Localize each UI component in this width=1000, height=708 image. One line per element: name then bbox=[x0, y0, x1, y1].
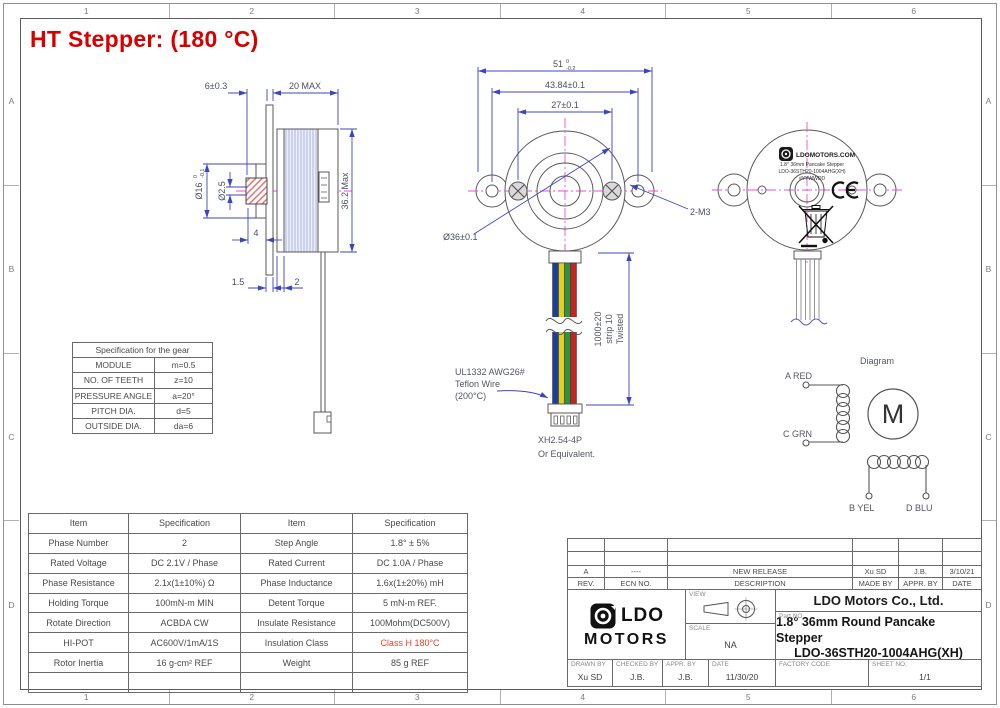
wire-connector bbox=[314, 412, 331, 433]
spec-cell: 1.8° ± 5% bbox=[353, 533, 468, 553]
part-cell: Part NO. 1.8° 36mm Round Pancake Stepper… bbox=[775, 611, 982, 660]
spec-cell: 85 g REF bbox=[353, 653, 468, 673]
connector-latch bbox=[327, 416, 331, 422]
checked-by-cell: CHECKED BY J.B. bbox=[612, 659, 663, 687]
sheet-no-value: 1/1 bbox=[919, 665, 931, 682]
label-line2: LDO-36STH20-1004AHG(XH) bbox=[779, 169, 846, 175]
spec-cell: 1.6x(1±20%) mH bbox=[353, 573, 468, 593]
spec-cell: Phase Inductance bbox=[241, 573, 353, 593]
empty-cell bbox=[567, 538, 605, 552]
date-label: DATE bbox=[712, 661, 729, 668]
svg-text:0: 0 bbox=[193, 175, 199, 178]
spec-cell: Rated Current bbox=[241, 553, 353, 573]
front-view: 51 0 -0.2 43.84±0.1 27±0.1 Ø36±0.1 2-M3 bbox=[443, 59, 711, 459]
scale-cell: SCALE NA bbox=[685, 623, 776, 660]
date-cell: DATE 11/30/20 bbox=[708, 659, 776, 687]
wire-bundle bbox=[546, 251, 582, 426]
company-name-cell: LDO Motors Co., Ltd. bbox=[775, 589, 982, 612]
part-number: LDO-36STH20-1004AHG(XH) bbox=[794, 646, 963, 660]
gear-value: d=5 bbox=[155, 403, 213, 418]
terminal-c bbox=[803, 440, 809, 446]
terminal-a-label: A RED bbox=[785, 371, 813, 381]
spec-cell: 100mN-m MIN bbox=[129, 593, 241, 613]
spec-cell: Insulation Class bbox=[241, 633, 353, 653]
spec-cell: Insulate Resistance bbox=[241, 613, 353, 633]
length-note-strip: strip 10 bbox=[604, 314, 614, 344]
label-mounting-holes: 2-M3 bbox=[690, 207, 711, 217]
dim-plate-thk: 2 bbox=[294, 277, 299, 287]
drawn-by-cell: DRAWN BY Xu SD bbox=[567, 659, 613, 687]
gear-table-title: Specification for the gear bbox=[73, 343, 213, 358]
motor-spec-table: Item Specification Item Specification Ph… bbox=[28, 513, 468, 693]
spec-cell: 5 mN-m REF. bbox=[353, 593, 468, 613]
mounting-hole-left bbox=[486, 185, 498, 197]
rear-wires bbox=[791, 251, 827, 325]
phase-coil-ac bbox=[837, 385, 850, 443]
dim-body-od: 36.2 Max bbox=[340, 172, 350, 210]
screw-right bbox=[603, 182, 621, 200]
dim-bore: Ø2.5 bbox=[217, 181, 227, 201]
wire-note-leader bbox=[497, 391, 548, 398]
spec-cell: 2.1x(1±10%) Ω bbox=[129, 573, 241, 593]
empty-cell bbox=[567, 551, 605, 566]
spec-cell: Step Angle bbox=[241, 533, 353, 553]
empty-cell bbox=[852, 538, 899, 552]
part-title: 1.8° 36mm Round Pancake Stepper bbox=[776, 615, 981, 646]
wire-note-2: Teflon Wire bbox=[455, 379, 500, 389]
length-note-twisted: Twisted bbox=[615, 314, 625, 345]
empty-cell bbox=[241, 673, 353, 693]
empty-cell bbox=[898, 551, 943, 566]
empty-cell bbox=[942, 551, 982, 566]
gear-item: NO. OF TEETH bbox=[73, 373, 155, 388]
mounting-hole-left bbox=[728, 184, 740, 196]
dim-tab-width: 51 bbox=[553, 59, 563, 69]
spec-header: Item bbox=[241, 514, 353, 534]
connector-note-2: Or Equivalent. bbox=[538, 449, 595, 459]
empty-cell bbox=[129, 673, 241, 693]
gear-item: PITCH DIA. bbox=[73, 403, 155, 418]
terminal-d-label: D BLU bbox=[906, 503, 933, 513]
rear-view: LDOMOTORS.COM 1.8° 36mm Pancake Stepper … bbox=[712, 122, 902, 325]
checked-by-label: CHECKED BY bbox=[616, 661, 658, 668]
dim-flange-thk: 1.5 bbox=[232, 277, 245, 287]
rear-connector-block bbox=[319, 172, 329, 202]
spec-cell: Detent Torque bbox=[241, 593, 353, 613]
wire-note-3: (200°C) bbox=[455, 391, 486, 401]
spec-cell: Weight bbox=[241, 653, 353, 673]
company-logo: LDO MOTORS bbox=[567, 589, 686, 660]
drawn-by-label: DRAWN BY bbox=[571, 661, 606, 668]
phase-coil-bd bbox=[868, 456, 929, 469]
empty-cell bbox=[942, 538, 982, 552]
third-angle-projection-icon bbox=[696, 597, 766, 621]
empty-cell bbox=[604, 551, 668, 566]
empty-cell bbox=[898, 538, 943, 552]
label-line3: #YYWWDD bbox=[799, 176, 826, 182]
side-view: 6±0.3 20 MAX Ø16 0 -0.1 Ø2.5 36.2 Max 4 … bbox=[193, 81, 357, 433]
sheet-no-label: SHEET NO. bbox=[872, 661, 907, 668]
spec-cell: 2 bbox=[129, 533, 241, 553]
sheet-no-cell: SHEET NO. 1/1 bbox=[868, 659, 982, 687]
logo-text-ldo: LDO bbox=[621, 606, 664, 625]
front-plate bbox=[277, 129, 284, 252]
factory-code-label: FACTORY CODE bbox=[779, 661, 830, 668]
terminal-a bbox=[803, 382, 809, 388]
empty-cell bbox=[667, 538, 853, 552]
wire-green bbox=[565, 263, 571, 405]
appr-by-label: APPR. BY bbox=[666, 661, 696, 668]
lead-wire bbox=[321, 252, 325, 412]
label-brand: LDOMOTORS.COM bbox=[796, 152, 855, 159]
dim-tab-width-tol-lower: -0.2 bbox=[566, 66, 575, 72]
connector-note-1: XH2.54-4P bbox=[538, 435, 582, 445]
spec-cell: ACBDA CW bbox=[129, 613, 241, 633]
connector-housing bbox=[548, 404, 582, 413]
empty-cell bbox=[667, 551, 853, 566]
gear-value: a=20° bbox=[155, 388, 213, 403]
dim-body-dia: Ø36±0.1 bbox=[443, 232, 477, 242]
scale-value: NA bbox=[724, 634, 737, 650]
spec-header: Specification bbox=[129, 514, 241, 534]
title-block: A ---- NEW RELEASE Xu SD J.B. 3/10/21 RE… bbox=[567, 538, 982, 687]
date-value: 11/30/20 bbox=[726, 665, 758, 682]
gear-item: MODULE bbox=[73, 358, 155, 373]
spec-cell: Phase Number bbox=[29, 533, 129, 553]
dim-tab-width-tol-upper: 0 bbox=[566, 59, 569, 65]
spec-cell: AC600V/1mA/1S bbox=[129, 633, 241, 653]
gear-section bbox=[246, 178, 267, 204]
dim-screw-span: 27±0.1 bbox=[551, 100, 578, 110]
dim-gear-length: 6±0.3 bbox=[205, 81, 227, 91]
drawing-sheet: 1 2 3 4 5 6 1 2 3 4 5 6 A B C D A B C D … bbox=[0, 0, 1000, 708]
factory-code-cell: FACTORY CODE bbox=[775, 659, 869, 687]
empty-cell bbox=[353, 673, 468, 693]
svg-text:-0.1: -0.1 bbox=[200, 169, 206, 178]
gear-value: m=0.5 bbox=[155, 358, 213, 373]
terminal-c-label: C GRN bbox=[783, 429, 812, 439]
wiring-diagram: Diagram A RED C GRN M B YEL D BLU bbox=[783, 356, 933, 513]
part-no-label: Part NO. bbox=[779, 613, 804, 620]
label-line1: 1.8° 36mm Pancake Stepper bbox=[780, 162, 844, 168]
scale-label: SCALE bbox=[689, 625, 710, 632]
spec-cell: 16 g-cm² REF bbox=[129, 653, 241, 673]
spec-cell-insulation-class: Class H 180°C bbox=[353, 633, 468, 653]
logo-text-motors: MOTORS bbox=[584, 632, 669, 648]
mounting-hole-right bbox=[874, 184, 886, 196]
wire-note-1: UL1332 AWG26# bbox=[455, 367, 525, 377]
gear-item: OUTSIDE DIA. bbox=[73, 418, 155, 433]
empty-cell bbox=[604, 538, 668, 552]
motor-symbol: M bbox=[882, 399, 905, 429]
spec-header: Item bbox=[29, 514, 129, 534]
spec-cell: 100Mohm(DC500V) bbox=[353, 613, 468, 633]
appr-by-cell: APPR. BY J.B. bbox=[662, 659, 709, 687]
dim-body-length: 20 MAX bbox=[289, 81, 321, 91]
spec-header: Specification bbox=[353, 514, 468, 534]
dim-gear-od: Ø16 0 -0.1 bbox=[193, 169, 206, 200]
company-name: LDO Motors Co., Ltd. bbox=[814, 593, 944, 608]
spec-cell: Rated Voltage bbox=[29, 553, 129, 573]
view-label: VIEW bbox=[689, 591, 706, 598]
dim-hole-span: 43.84±0.1 bbox=[545, 80, 585, 90]
spec-cell: Rotate Direction bbox=[29, 613, 129, 633]
empty-cell bbox=[29, 673, 129, 693]
spec-cell: DC 2.1V / Phase bbox=[129, 553, 241, 573]
spec-cell: DC 1.0A / Phase bbox=[353, 553, 468, 573]
length-note-value: 1000±20 bbox=[593, 312, 603, 347]
gear-item: PRESSURE ANGLE bbox=[73, 388, 155, 403]
terminal-b-label: B YEL bbox=[849, 503, 874, 513]
screw-left bbox=[509, 182, 527, 200]
ldo-logo-icon bbox=[589, 602, 617, 630]
terminal-d bbox=[923, 493, 929, 499]
spec-cell: Holding Torque bbox=[29, 593, 129, 613]
spec-cell: Rotor Inertia bbox=[29, 653, 129, 673]
stator-body bbox=[284, 129, 318, 252]
empty-cell bbox=[852, 551, 899, 566]
gear-spec-table: Specification for the gear MODULEm=0.5 N… bbox=[72, 342, 213, 434]
terminal-b bbox=[866, 493, 872, 499]
gear-value: z=10 bbox=[155, 373, 213, 388]
dim-boss: 4 bbox=[253, 228, 258, 238]
spec-cell: HI-POT bbox=[29, 633, 129, 653]
view-cell: VIEW bbox=[685, 589, 776, 624]
spec-cell: Phase Resistance bbox=[29, 573, 129, 593]
diagram-title: Diagram bbox=[860, 356, 894, 366]
svg-text:Ø16: Ø16 bbox=[194, 182, 204, 199]
gear-value: da=6 bbox=[155, 418, 213, 433]
